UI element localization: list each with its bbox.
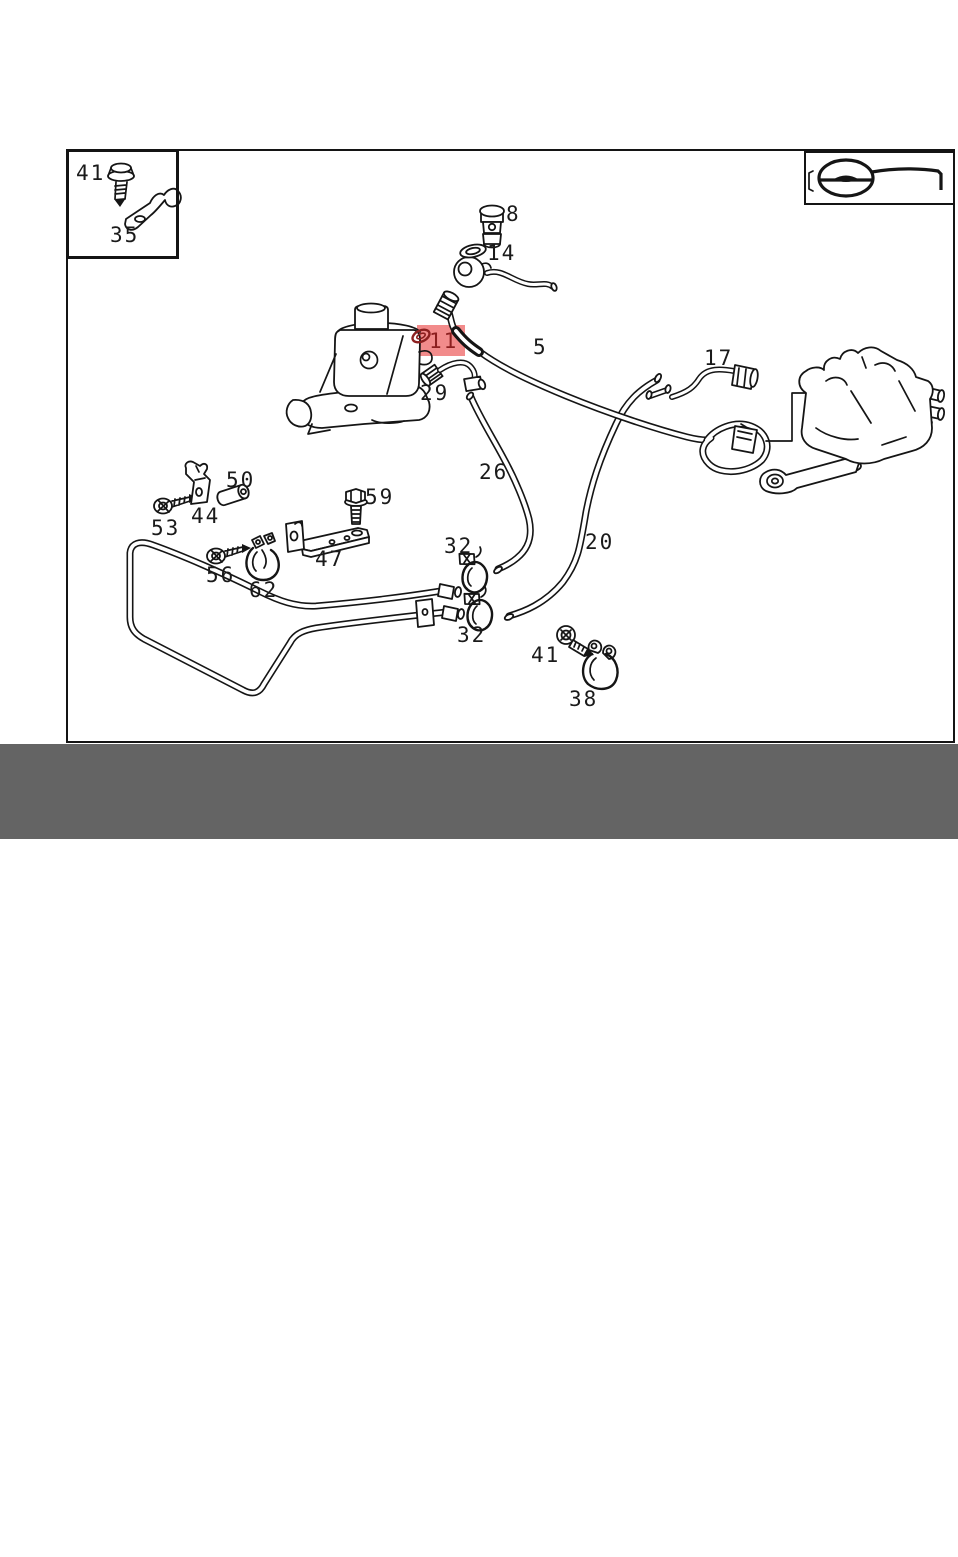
hose-20 <box>504 373 663 621</box>
inset-frame <box>66 149 179 259</box>
screw-56 <box>207 544 251 564</box>
page: { "footer": { "brand_and_part": "MERCEDE… <box>0 0 958 839</box>
bracket-47 <box>286 521 369 557</box>
banjo-hose <box>454 257 558 292</box>
legend-frame <box>804 151 955 205</box>
cooler-pipe-23 <box>130 543 447 693</box>
fitting-29 <box>419 363 487 395</box>
footer-sheet-ref: N - 11 <box>745 1512 838 1556</box>
screw-41-lower <box>557 626 594 657</box>
seal-washer-14 <box>459 242 487 259</box>
hose-5-fitting <box>434 289 460 319</box>
pipe-17 <box>646 365 759 400</box>
banjo-bolt-8 <box>480 206 504 248</box>
hose-26 <box>466 391 531 574</box>
spacer-50 <box>216 483 251 506</box>
hose-clamp-32-upper <box>457 547 487 592</box>
clamp-62 <box>246 533 278 580</box>
hose-clamp-32-lower <box>462 587 492 630</box>
steering-pump <box>287 304 432 435</box>
footer-bar: MERCEDES BENZ - A0199977348 N - 11 <box>0 744 958 839</box>
footer-brand-part-number: MERCEDES BENZ - A0199977348 <box>113 1512 666 1556</box>
bolt-59 <box>345 489 367 524</box>
steering-gear <box>760 347 945 493</box>
parts-diagram-drawing <box>0 0 958 839</box>
clamp-38 <box>583 641 617 689</box>
